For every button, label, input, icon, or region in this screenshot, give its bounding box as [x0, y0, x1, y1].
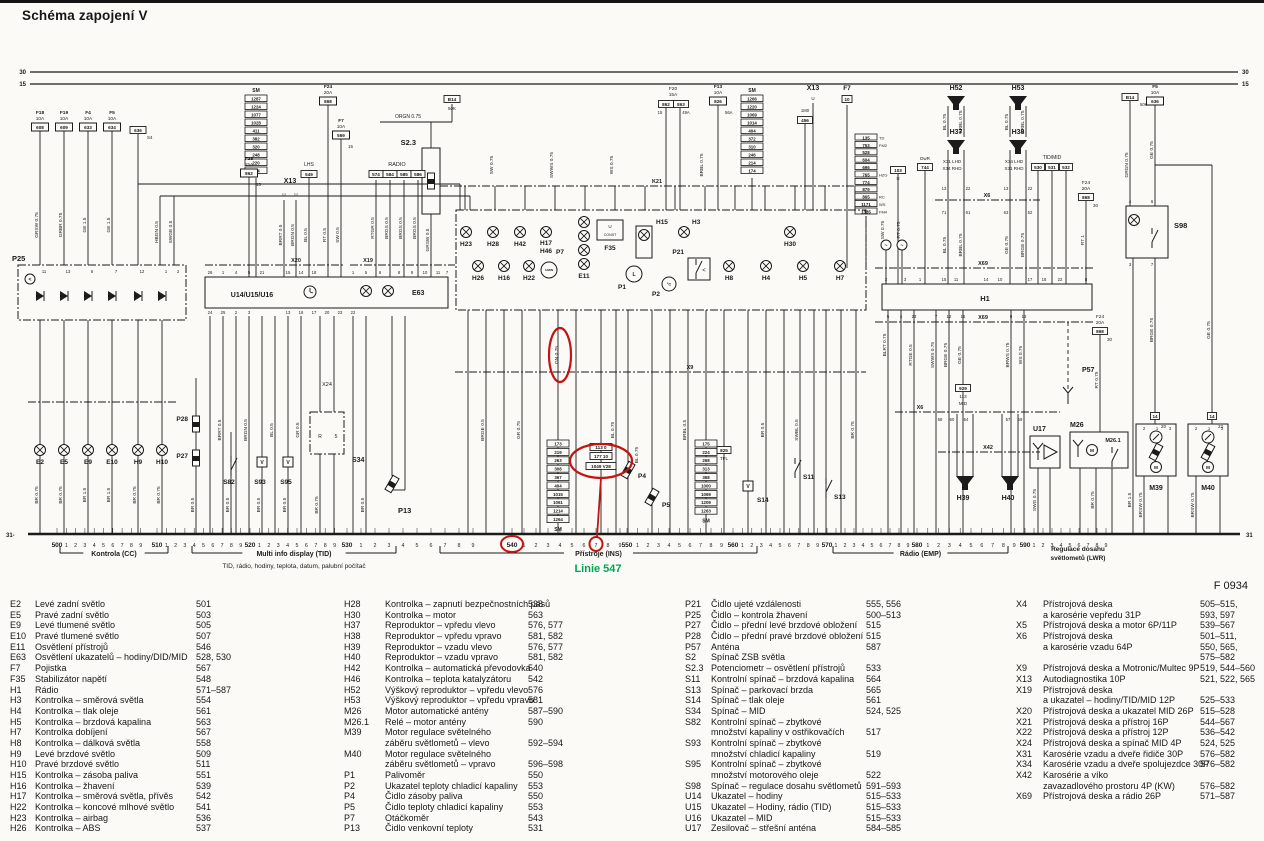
- svg-text:9: 9: [411, 270, 414, 275]
- legend-row: E11Osvětlení přístrojů546: [10, 642, 330, 653]
- svg-text:308: 308: [554, 467, 562, 472]
- glyph-text: S14: [757, 497, 769, 504]
- legend-row: a karosérie vzadu 64P550, 565,: [1016, 642, 1264, 653]
- svg-text:14: 14: [299, 270, 304, 275]
- svg-text:23: 23: [338, 310, 343, 315]
- glyph-switch: [1152, 228, 1158, 248]
- glyph-text: P7: [556, 249, 564, 256]
- svg-text:HZG: HZG: [879, 172, 887, 177]
- svg-text:4: 4: [1129, 199, 1132, 204]
- legend-row: H15Kontrolka – zásoba paliva551: [10, 770, 330, 781]
- svg-text:14: 14: [1152, 414, 1158, 419]
- svg-text:GR 0.75: GR 0.75: [516, 421, 522, 439]
- svg-text:23: 23: [912, 314, 917, 319]
- svg-text:7: 7: [221, 543, 224, 549]
- legend-row: U16Ukazatel – MID515–533: [685, 813, 1005, 824]
- legend-column-3: P21Čidlo ujeté vzdálenosti555, 556P25Čid…: [685, 599, 1005, 834]
- legend-row: H22Kontrolka – koncové mlhové světlo541: [10, 802, 330, 813]
- svg-text:368: 368: [702, 475, 710, 480]
- svg-text:634: 634: [108, 125, 116, 130]
- svg-text:BRGE 0.75: BRGE 0.75: [943, 343, 949, 368]
- svg-text:WS 0.75: WS 0.75: [1018, 345, 1024, 364]
- svg-text:GRBR 0.75: GRBR 0.75: [58, 212, 64, 237]
- glyph-text: P57: [1082, 367, 1095, 374]
- glyph-motor: M: [1151, 462, 1162, 473]
- svg-text:BR 0.5: BR 0.5: [282, 497, 288, 512]
- glyph-pins: 46: [1129, 199, 1154, 204]
- svg-text:F24: F24: [324, 84, 333, 90]
- legend-row: H46Kontrolka – teplota katalyzátoru542: [344, 674, 664, 685]
- glyph-text: X34 RHD: [942, 166, 962, 171]
- svg-text:1061: 1061: [553, 500, 563, 505]
- svg-text:1: 1: [360, 543, 363, 549]
- svg-text:H5: H5: [799, 275, 808, 282]
- glyph-pins: 1113671212: [42, 269, 180, 274]
- svg-text:6: 6: [91, 269, 94, 274]
- svg-text:528: 528: [862, 150, 870, 155]
- svg-text:BRGN 0.5: BRGN 0.5: [290, 224, 296, 246]
- svg-text:RADIO: RADIO: [388, 162, 406, 168]
- svg-text:220: 220: [252, 160, 260, 165]
- legend-row: H23Kontrolka – airbag536: [10, 813, 330, 824]
- svg-text:2: 2: [74, 543, 77, 549]
- legend-row: U14Ukazatel – hodiny515–533: [685, 791, 1005, 802]
- svg-text:9: 9: [333, 543, 336, 549]
- legend-row: X42Karosérie a víko: [1016, 770, 1264, 781]
- legend-row: zavazadlového prostoru 4P (KW)576–582: [1016, 781, 1264, 792]
- legend-row: množství motorového oleje522: [685, 770, 1005, 781]
- legend-row: záběru světlometů – vpravo596–598: [344, 759, 664, 770]
- svg-text:633: 633: [84, 125, 92, 130]
- svg-text:X42: X42: [983, 445, 993, 451]
- svg-text:SWWS 0.75: SWWS 0.75: [549, 152, 555, 178]
- glyph-text: H1: [980, 294, 990, 303]
- svg-text:BL 0.75: BL 0.75: [610, 421, 616, 438]
- svg-text:14: 14: [1209, 414, 1215, 419]
- svg-text:H53: H53: [1012, 85, 1025, 92]
- svg-text:F7: F7: [843, 85, 851, 92]
- svg-text:P13: P13: [398, 506, 411, 515]
- svg-text:H3: H3: [692, 219, 701, 226]
- glyph-numbox: 868: [1093, 328, 1108, 335]
- svg-text:Regulace dosahu: Regulace dosahu: [1051, 546, 1105, 553]
- svg-text:BR 0.5: BR 0.5: [760, 422, 766, 437]
- svg-text:15: 15: [942, 277, 947, 282]
- svg-text:5: 5: [202, 543, 205, 549]
- glyph-fuse: F1810A608: [32, 110, 49, 131]
- svg-text:E63: E63: [412, 290, 425, 297]
- svg-text:BL 0.75: BL 0.75: [634, 446, 640, 463]
- svg-text:BRWS 0.75: BRWS 0.75: [1005, 342, 1011, 367]
- svg-text:RT 0.75: RT 0.75: [896, 221, 902, 238]
- svg-text:1M0: 1M0: [801, 108, 810, 113]
- svg-text:X13: X13: [807, 85, 820, 92]
- svg-text:2: 2: [1143, 426, 1146, 431]
- linie-547-label: Linie 547: [574, 563, 621, 575]
- svg-text:22: 22: [1058, 277, 1063, 282]
- svg-text:1: 1: [1208, 426, 1211, 431]
- legend-row: H5Kontrolka – brzdová kapalina563: [10, 717, 330, 728]
- svg-text:863: 863: [677, 102, 685, 107]
- glyph-sensor: [1149, 443, 1163, 460]
- legend-row: X5Přístrojová deska a motor 6P/11P539–56…: [1016, 620, 1264, 631]
- svg-text:P25: P25: [12, 254, 25, 263]
- svg-text:BR 0.5: BR 0.5: [360, 497, 366, 512]
- svg-text:BR 0.5: BR 0.5: [256, 497, 262, 512]
- svg-text:560: 560: [728, 542, 739, 549]
- svg-text:18: 18: [312, 270, 317, 275]
- svg-text:13: 13: [1022, 314, 1027, 319]
- svg-text:175: 175: [702, 441, 710, 446]
- svg-text:30: 30: [1093, 203, 1099, 208]
- svg-text:7: 7: [444, 543, 447, 549]
- glyph-swbox: V: [743, 481, 753, 491]
- svg-text:3: 3: [1169, 426, 1172, 431]
- svg-text:929: 929: [959, 386, 967, 391]
- svg-text:174: 174: [748, 168, 756, 173]
- svg-text:313: 313: [702, 467, 710, 472]
- svg-text:DwR: DwR: [920, 156, 930, 161]
- glyph-pins: 213: [1143, 426, 1172, 431]
- glyph-lamp: H7: [835, 261, 846, 283]
- glyph-text: 15: [658, 110, 663, 115]
- glyph-pins: 231151114101718228: [885, 277, 1088, 282]
- glyph-lamp: H5: [798, 261, 809, 283]
- svg-text:4: 4: [862, 543, 865, 549]
- svg-text:30: 30: [19, 70, 26, 76]
- svg-text:BLRT 0.75: BLRT 0.75: [882, 333, 888, 356]
- glyph-numbox: 825: [717, 447, 731, 454]
- svg-text:BL 0.5: BL 0.5: [303, 228, 309, 242]
- glyph-numbox: 456: [798, 117, 813, 124]
- glyph-text: U14/U15/U16: [231, 292, 274, 299]
- legend-row: množství chladicí kapaliny519: [685, 749, 1005, 760]
- svg-text:4: 4: [900, 314, 903, 319]
- svg-text:BR 1.5: BR 1.5: [1127, 492, 1133, 507]
- svg-text:15: 15: [658, 110, 663, 115]
- svg-text:X6: X6: [917, 405, 924, 411]
- svg-text:ORGN 0.75: ORGN 0.75: [395, 114, 421, 120]
- glyph-led: [134, 291, 142, 301]
- glyph-numbox: 863: [674, 101, 689, 108]
- svg-text:BRGE 0.5: BRGE 0.5: [480, 419, 486, 441]
- svg-text:GRGN 0.75: GRGN 0.75: [1124, 152, 1130, 177]
- svg-text:L: L: [632, 272, 635, 278]
- glyph-fuse: F1910A609: [56, 110, 73, 131]
- svg-text:H30: H30: [784, 241, 796, 248]
- glyph-text: S4: [147, 135, 153, 140]
- glyph-text: 20A: [1082, 186, 1091, 192]
- svg-text:LHS: LHS: [304, 162, 314, 168]
- glyph-text: 50K: [448, 106, 456, 111]
- svg-text:500: 500: [52, 542, 63, 549]
- glyph-text: 30: [1093, 203, 1099, 208]
- legend-row: H9Levé brzdové světlo509: [10, 749, 330, 760]
- svg-text:2: 2: [647, 543, 650, 549]
- svg-text:382: 382: [252, 136, 260, 141]
- glyph-fuse: F2420A868: [320, 84, 337, 105]
- svg-text:BL 0.75: BL 0.75: [942, 113, 948, 130]
- legend-row: H40Reproduktor – vzadu vpravo581, 582: [344, 652, 664, 663]
- glyph-text: TFL: [720, 456, 728, 461]
- svg-text:6: 6: [788, 543, 791, 549]
- svg-text:8: 8: [1002, 543, 1005, 549]
- svg-text:H10: H10: [156, 459, 168, 466]
- svg-text:BRBL 0.75: BRBL 0.75: [958, 110, 964, 133]
- svg-text:1220: 1220: [747, 104, 757, 109]
- svg-text:12: 12: [947, 314, 952, 319]
- svg-text:9: 9: [1010, 314, 1013, 319]
- svg-text:411: 411: [252, 128, 260, 133]
- glyph-led: [60, 291, 68, 301]
- svg-text:3: 3: [1221, 426, 1224, 431]
- svg-text:7: 7: [699, 543, 702, 549]
- svg-text:SM: SM: [252, 88, 260, 94]
- legend-row: S93Kontrolní spínač – zbytkové: [685, 738, 1005, 749]
- glyph-numbox: 744: [918, 164, 933, 171]
- glyph-lamp: E9: [83, 445, 94, 467]
- glyph-fuse: F710A569: [333, 118, 350, 139]
- glyph-numbox: 14: [1151, 413, 1160, 420]
- glyph-text: M40: [1201, 485, 1215, 492]
- glyph-text: U: [608, 224, 611, 229]
- svg-text:F19: F19: [60, 110, 69, 116]
- svg-text:2: 2: [267, 543, 270, 549]
- glyph-lamp: [579, 245, 590, 256]
- glyph-pins: 13221322: [942, 186, 1033, 191]
- svg-text:BRGS 0.5: BRGS 0.5: [412, 217, 418, 239]
- svg-text:<: <: [702, 268, 706, 274]
- glyph-text: P4: [638, 473, 646, 480]
- svg-text:P5: P5: [662, 502, 670, 509]
- glyph-text: U: [811, 96, 814, 101]
- svg-text:3: 3: [248, 310, 251, 315]
- glyph-numbox: 532: [1060, 164, 1073, 171]
- svg-text:°C: °C: [667, 282, 672, 287]
- svg-text:4: 4: [286, 543, 289, 549]
- svg-text:M40: M40: [1201, 485, 1215, 492]
- glyph-clock: [304, 286, 316, 298]
- svg-text:15A: 15A: [245, 162, 254, 168]
- svg-text:U: U: [294, 192, 297, 197]
- svg-text:5: 5: [335, 434, 338, 440]
- svg-text:214: 214: [748, 160, 756, 165]
- svg-text:63: 63: [1004, 210, 1009, 215]
- svg-text:5: 5: [678, 543, 681, 549]
- svg-text:BRBL 0.75: BRBL 0.75: [699, 153, 705, 176]
- legend-row: 575–582: [1016, 652, 1264, 663]
- legend-row: X13Autodiagnostika 10P521, 522, 565: [1016, 674, 1264, 685]
- svg-text:2: 2: [750, 543, 753, 549]
- svg-text:U: U: [608, 224, 611, 229]
- glyph-pins: 5860645759: [938, 417, 1023, 422]
- svg-text:550: 550: [622, 542, 633, 549]
- svg-text:52: 52: [1028, 210, 1033, 215]
- svg-text:F20: F20: [669, 86, 678, 92]
- glyph-lamp: [541, 227, 552, 238]
- glyph-text: R: [318, 434, 322, 440]
- glyph-numbox: 584: [383, 171, 397, 178]
- glyph-lamp: H10: [156, 445, 168, 467]
- svg-text:P27: P27: [176, 453, 188, 460]
- glyph-text: X24: [322, 382, 332, 388]
- svg-text:636: 636: [1151, 99, 1159, 104]
- legend-row: P1Palivoměr550: [344, 770, 664, 781]
- svg-text:20: 20: [1161, 424, 1167, 429]
- glyph-text: F35: [604, 245, 616, 252]
- svg-text:TID, rádio, hodiny, teplota, d: TID, rádio, hodiny, teplota, datum, palu…: [222, 563, 366, 570]
- glyph-tri: [1044, 445, 1057, 459]
- svg-text:268: 268: [702, 458, 710, 463]
- glyph-text: ORGN 0.75: [395, 114, 421, 120]
- svg-text:9: 9: [139, 543, 142, 549]
- legend-row: M39Motor regulace světelného: [344, 727, 664, 738]
- svg-text:5: 5: [779, 543, 782, 549]
- svg-text:F13: F13: [714, 84, 723, 90]
- svg-text:825: 825: [720, 448, 728, 453]
- svg-text:BR 0.75: BR 0.75: [1090, 491, 1096, 509]
- glyph-ant: [1033, 443, 1043, 460]
- svg-text:569: 569: [337, 133, 345, 138]
- glyph-ant: [1073, 440, 1083, 457]
- svg-text:TFL: TFL: [720, 456, 728, 461]
- svg-text:8: 8: [1085, 277, 1088, 282]
- legend-row: E2Levé zadní světlo501: [10, 599, 330, 610]
- svg-text:S13: S13: [834, 494, 846, 501]
- svg-text:1014: 1014: [747, 120, 757, 125]
- glyph-text: X13: [807, 85, 820, 92]
- svg-text:S34: S34: [352, 457, 365, 464]
- svg-text:584: 584: [386, 172, 394, 177]
- svg-text:GE 0.75: GE 0.75: [957, 346, 963, 364]
- legend-column-1: E2Levé zadní světlo501E5Pravé zadní svět…: [10, 599, 330, 834]
- glyph-text: S82: [223, 479, 235, 486]
- legend-row: E63Osvětlení ukazatelů – hodiny/DID/MID5…: [10, 652, 330, 663]
- svg-text:13: 13: [942, 186, 947, 191]
- svg-text:8: 8: [324, 543, 327, 549]
- svg-text:2: 2: [235, 310, 238, 315]
- svg-text:H15: H15: [656, 219, 668, 226]
- glyph-numbox: 929: [956, 385, 971, 392]
- svg-text:7: 7: [314, 543, 317, 549]
- svg-text:X69: X69: [978, 261, 988, 267]
- svg-text:57: 57: [1006, 417, 1011, 422]
- U17-block: [1030, 436, 1060, 468]
- glyph-switch: [826, 478, 832, 498]
- svg-text:263: 263: [554, 458, 562, 463]
- svg-text:4: 4: [93, 543, 96, 549]
- glyph-sensor: [1201, 443, 1215, 460]
- glyph-lamp: [679, 227, 690, 238]
- svg-text:RT 0.5: RT 0.5: [322, 228, 328, 243]
- svg-text:TID/MID: TID/MID: [1043, 155, 1062, 161]
- svg-text:16: 16: [961, 314, 966, 319]
- svg-text:404: 404: [748, 128, 756, 133]
- svg-text:BR 0.5: BR 0.5: [190, 497, 196, 512]
- legend-row: M26.1Relé – motor antény590: [344, 717, 664, 728]
- glyph-lamp: E5: [59, 445, 70, 467]
- glyph-text: CONST: [604, 233, 617, 237]
- svg-text:4: 4: [402, 543, 405, 549]
- svg-text:5: 5: [970, 543, 973, 549]
- svg-text:SWBL 0.5: SWBL 0.5: [794, 419, 800, 441]
- glyph-lamp: H30: [784, 227, 796, 249]
- glyph-text: X34 LHD: [1005, 159, 1024, 164]
- svg-text:H22: H22: [523, 275, 535, 282]
- svg-text:310: 310: [748, 144, 756, 149]
- svg-text:S95: S95: [280, 479, 292, 486]
- svg-text:826: 826: [714, 99, 722, 104]
- legend-row: H26Kontrolka – ABS537: [10, 823, 330, 834]
- svg-text:7: 7: [446, 270, 449, 275]
- legend-row: X69Přístrojová deska a rádio 26P571–587: [1016, 791, 1264, 802]
- svg-text:608: 608: [36, 125, 44, 130]
- svg-text:2: 2: [374, 543, 377, 549]
- glyph-text: S93: [254, 479, 266, 486]
- svg-text:Kontrola (CC): Kontrola (CC): [91, 551, 137, 558]
- legend-row: P21Čidlo ujeté vzdálenosti555, 556: [685, 599, 1005, 610]
- svg-text:2: 2: [1042, 543, 1045, 549]
- glyph-numbox: 585: [397, 171, 411, 178]
- svg-text:GE 1.5: GE 1.5: [82, 217, 88, 232]
- legend-row: S13Spínač – parkovací brzda565: [685, 685, 1005, 696]
- glyph-text: P28: [176, 416, 188, 423]
- legend-row: X21Přístrojová deska a přístroj 16P544–5…: [1016, 717, 1264, 728]
- svg-text:E9: E9: [84, 459, 92, 466]
- svg-text:SM: SM: [702, 519, 710, 525]
- svg-text:BR 1.5: BR 1.5: [82, 487, 88, 502]
- svg-text:RT 1: RT 1: [1080, 235, 1086, 246]
- legend-row: H16Kontrolka – žhavení539: [10, 781, 330, 792]
- glyph-text: 20: [1161, 424, 1167, 429]
- glyph-text: P13: [398, 506, 411, 515]
- svg-text:3: 3: [657, 543, 660, 549]
- svg-text:862: 862: [662, 102, 670, 107]
- svg-text:P4: P4: [638, 473, 646, 480]
- glyph-text: S11: [803, 474, 815, 481]
- svg-text:7: 7: [121, 543, 124, 549]
- svg-text:574: 574: [372, 172, 380, 177]
- svg-text:RC: RC: [879, 195, 885, 200]
- svg-text:21: 21: [260, 270, 265, 275]
- glyph-text: M26: [1070, 422, 1084, 429]
- svg-text:H26: H26: [472, 275, 484, 282]
- svg-text:11: 11: [954, 277, 959, 282]
- svg-text:1: 1: [1156, 426, 1159, 431]
- svg-text:7: 7: [115, 269, 118, 274]
- svg-text:15: 15: [348, 144, 354, 149]
- svg-text:8: 8: [807, 543, 810, 549]
- glyph-text: P27: [176, 453, 188, 460]
- glyph-gauge: <: [25, 274, 35, 284]
- svg-text:H9: H9: [134, 459, 143, 466]
- legend-row: P7Otáčkoměr543: [344, 813, 664, 824]
- svg-text:64: 64: [964, 417, 969, 422]
- glyph-text: 1M0: [801, 108, 810, 113]
- svg-text:F28: F28: [245, 156, 254, 162]
- svg-text:TD: TD: [879, 135, 884, 140]
- svg-text:BRBL 0.75: BRBL 0.75: [958, 233, 964, 256]
- glyph-text: H52: [950, 85, 963, 92]
- svg-text:59: 59: [1018, 417, 1023, 422]
- svg-text:M: M: [1154, 465, 1158, 470]
- svg-text:9: 9: [907, 543, 910, 549]
- wiring-diagram: X20X19K21X9X69X69X6X6X423030151531-31500…: [0, 0, 1264, 596]
- legend-row: P57Anténa587: [685, 642, 1005, 653]
- glyph-text: H3: [692, 219, 701, 226]
- svg-text:135: 135: [862, 135, 870, 140]
- svg-text:P1: P1: [618, 284, 626, 291]
